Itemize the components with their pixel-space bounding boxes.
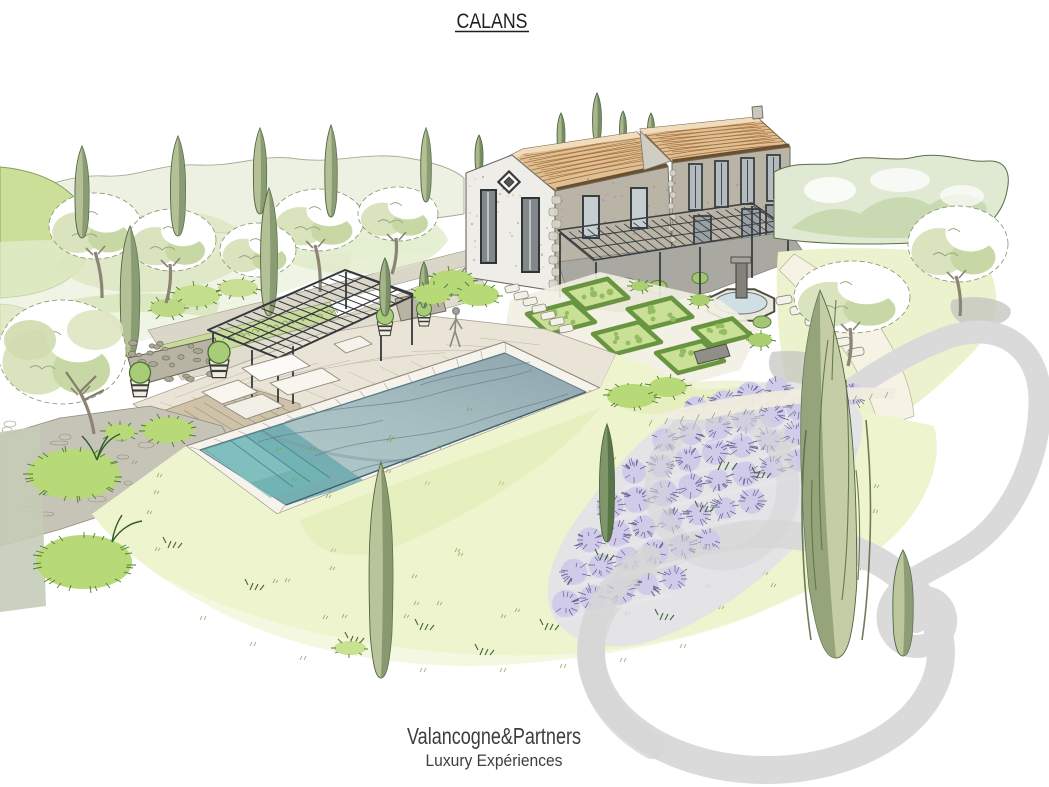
svg-text:CALANS: CALANS [457,10,528,33]
svg-text:Valancogne&Partners: Valancogne&Partners [407,723,581,749]
svg-text:Luxury Expériences: Luxury Expériences [426,751,563,770]
